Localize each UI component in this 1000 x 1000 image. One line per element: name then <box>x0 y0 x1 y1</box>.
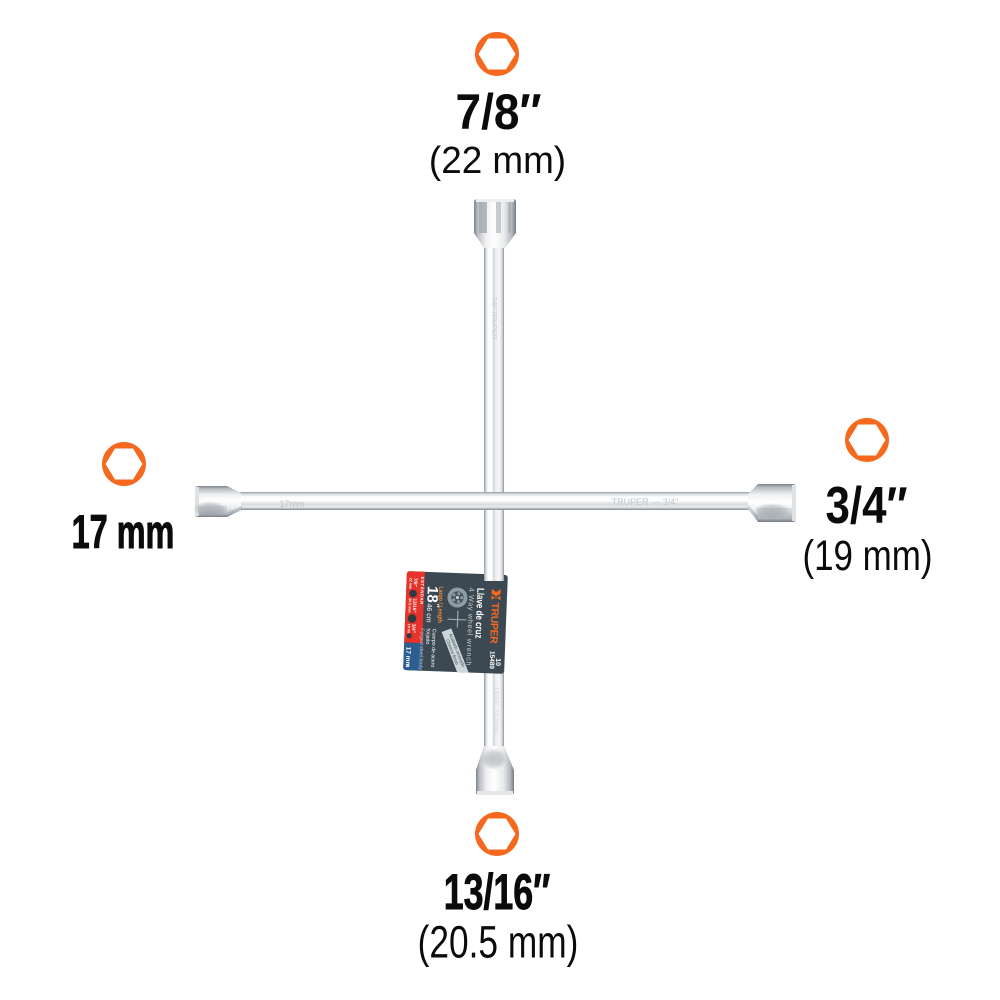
svg-text:TRUPER — 3/4": TRUPER — 3/4" <box>612 497 679 507</box>
svg-text:3/4″: 3/4″ <box>825 477 907 535</box>
svg-text:7/8″: 7/8″ <box>456 85 542 140</box>
svg-text:46 cm: 46 cm <box>424 603 432 622</box>
svg-text:20.5 mm: 20.5 mm <box>407 598 412 613</box>
svg-text:(20.5 mm): (20.5 mm) <box>418 916 579 967</box>
svg-text:(22 mm): (22 mm) <box>429 138 566 181</box>
svg-text:(19 mm): (19 mm) <box>802 532 932 579</box>
svg-text:13/16″: 13/16″ <box>444 865 551 920</box>
svg-text:18: 18 <box>423 586 441 603</box>
svg-text:17 mm: 17 mm <box>72 505 175 559</box>
svg-text:13/16" 20.5mm: 13/16" 20.5mm <box>492 686 499 733</box>
svg-text:TRUPER: TRUPER <box>487 602 501 644</box>
svg-text:10: 10 <box>494 658 501 666</box>
svg-text:17mm: 17mm <box>279 499 304 509</box>
svg-text:22 mm: 22 mm <box>408 578 412 590</box>
svg-text:7/8" TRUPER: 7/8" TRUPER <box>490 297 497 340</box>
